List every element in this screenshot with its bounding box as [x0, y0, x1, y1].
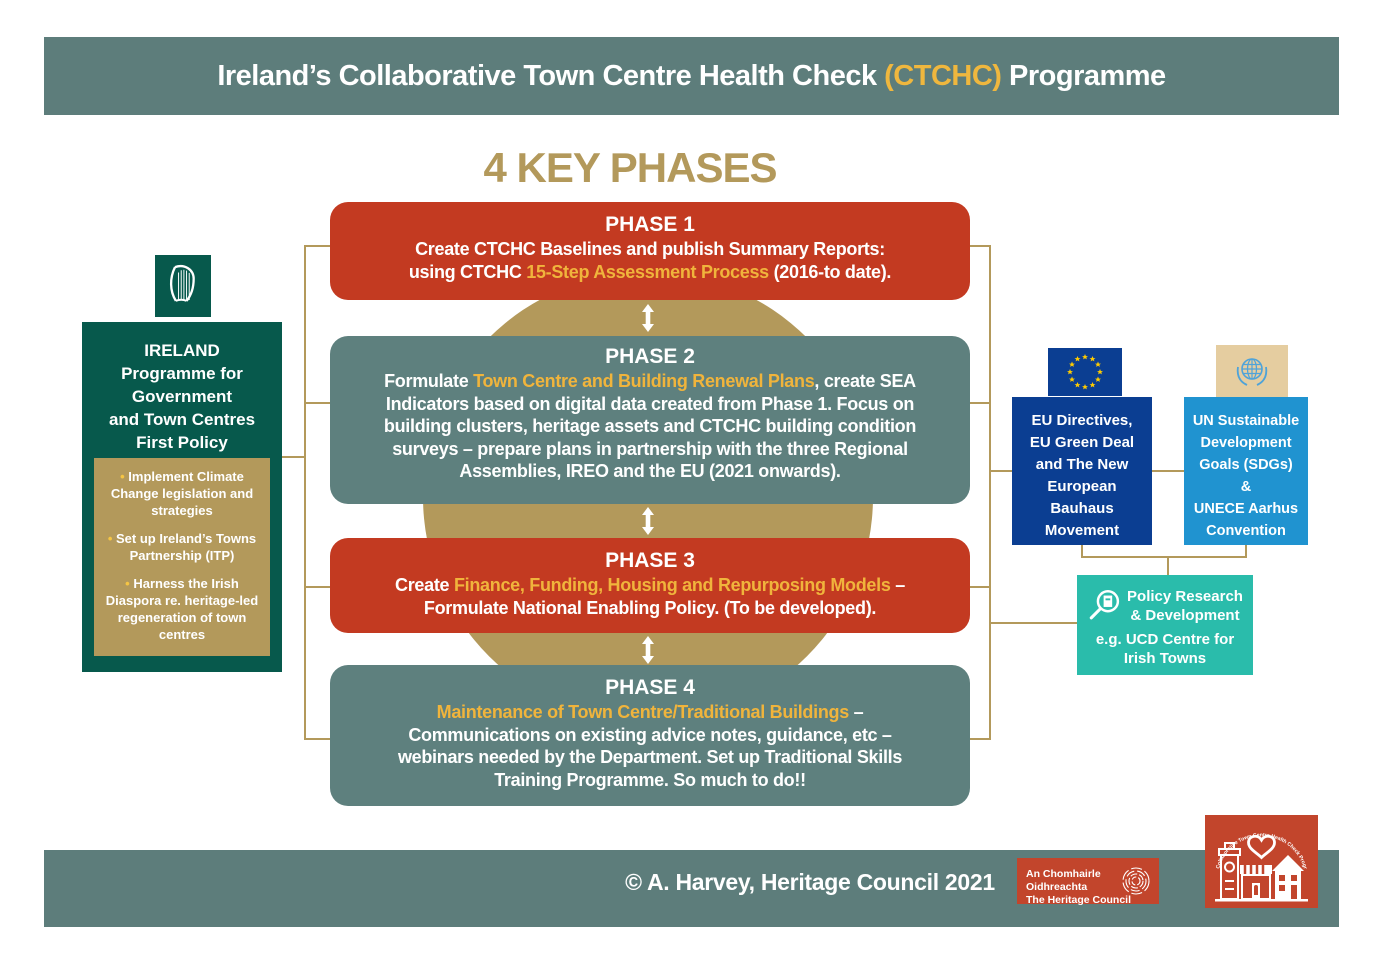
eu-flag-icon — [1048, 348, 1122, 396]
copyright-text: © A. Harvey, Heritage Council 2021 — [620, 869, 1000, 896]
connector-right-phase2 — [968, 402, 991, 404]
phase-2-body: Formulate Town Centre and Building Renew… — [345, 370, 955, 483]
connector-eu-un — [1152, 470, 1184, 472]
phase-2-highlight: Town Centre and Building Renewal Plans — [473, 371, 814, 391]
connector-policy-drop — [1167, 556, 1169, 576]
connector-left-phase1 — [304, 245, 332, 247]
double-arrow-icon — [641, 507, 655, 540]
phase-1-body: Create CTCHC Baselines and publish Summa… — [345, 238, 955, 283]
ireland-bullets-box: Implement Climate Change legislation and… — [94, 458, 270, 656]
town-buildings-icon: Collaborative Town Centre Health Check P… — [1205, 815, 1318, 908]
phase-2-box: PHASE 2 Formulate Town Centre and Buildi… — [330, 336, 970, 504]
connector-right-vertical — [989, 245, 991, 740]
bullet-item: Implement Climate Change legislation and… — [102, 468, 262, 519]
policy-box-title: Policy Research & Development — [1127, 587, 1243, 625]
phase-4-box: PHASE 4 Maintenance of Town Centre/Tradi… — [330, 665, 970, 806]
phase-1-title: PHASE 1 — [345, 212, 955, 238]
connector-left-phase3 — [304, 586, 332, 588]
double-arrow-icon — [641, 304, 655, 337]
connector-left-vertical — [304, 245, 306, 740]
header-bar: Ireland’s Collaborative Town Centre Heal… — [44, 37, 1339, 115]
phase-3-text: Create — [395, 575, 454, 595]
eu-directives-box: EU Directives, EU Green Deal and The New… — [1012, 397, 1152, 545]
phase-4-title: PHASE 4 — [345, 675, 955, 701]
connector-eu — [989, 470, 1014, 472]
un-sdg-box: UN Sustainable Development Goals (SDGs) … — [1184, 397, 1308, 545]
connector-right-phase1 — [968, 245, 991, 247]
connector-left-phase2 — [304, 402, 332, 404]
phase-1-text-2: (2016-to date). — [769, 262, 891, 282]
phase-1-highlight: 15-Step Assessment Process — [526, 262, 769, 282]
page-title-highlight: (CTCHC) — [884, 60, 1001, 92]
ireland-harp-badge — [155, 255, 211, 317]
phase-3-title: PHASE 3 — [345, 548, 955, 574]
page-title-suffix: Programme — [1001, 60, 1165, 92]
magnifier-icon — [1087, 587, 1125, 630]
bullet-item: Harness the Irish Diaspora re. heritage-… — [102, 575, 262, 643]
policy-research-box: Policy Research & Development e.g. UCD C… — [1077, 575, 1253, 675]
phase-4-highlight: Maintenance of Town Centre/Traditional B… — [437, 702, 849, 722]
phase-2-title: PHASE 2 — [345, 344, 955, 370]
bullet-item: Set up Ireland’s Towns Partnership (ITP) — [102, 530, 262, 564]
policy-box-subtitle: e.g. UCD Centre for Irish Towns — [1077, 630, 1253, 668]
phase-3-box: PHASE 3 Create Finance, Funding, Housing… — [330, 538, 970, 633]
page-title: Ireland’s Collaborative Town Centre Heal… — [217, 60, 1165, 93]
bullet-text: Set up Ireland’s Towns Partnership (ITP) — [116, 531, 256, 563]
connector-left-phase4 — [304, 738, 332, 740]
ctchc-logo: Collaborative Town Centre Health Check P… — [1205, 815, 1318, 908]
ctchc-programme-infographic: Ireland’s Collaborative Town Centre Heal… — [0, 0, 1384, 959]
bullet-text: Harness the Irish Diaspora re. heritage-… — [106, 576, 258, 642]
connector-policy — [989, 622, 1077, 624]
connector-drop-horizontal — [1081, 556, 1247, 558]
bullet-text: Implement Climate Change legislation and… — [111, 469, 253, 518]
phase-2-text: Formulate — [384, 371, 473, 391]
phase-3-highlight: Finance, Funding, Housing and Repurposin… — [454, 575, 891, 595]
connector-ireland — [282, 456, 306, 458]
ireland-panel-title: IRELAND Programme for Government and Tow… — [82, 339, 282, 454]
double-arrow-icon — [641, 636, 655, 669]
phase-3-body: Create Finance, Funding, Housing and Rep… — [345, 574, 955, 619]
section-title: 4 KEY PHASES — [330, 144, 930, 192]
phase-4-body: Maintenance of Town Centre/Traditional B… — [345, 701, 955, 791]
fingerprint-icon — [1119, 864, 1153, 903]
connector-right-phase3 — [968, 586, 991, 588]
phase-1-box: PHASE 1 Create CTCHC Baselines and publi… — [330, 202, 970, 300]
harp-icon — [167, 263, 199, 310]
heritage-council-logo: An Chomhairle Oidhreachta The Heritage C… — [1017, 858, 1159, 904]
ireland-policy-panel: IRELAND Programme for Government and Tow… — [82, 322, 282, 672]
connector-right-phase4 — [968, 738, 991, 740]
page-title-text: Ireland’s Collaborative Town Centre Heal… — [217, 60, 884, 92]
un-emblem-icon — [1216, 345, 1288, 398]
